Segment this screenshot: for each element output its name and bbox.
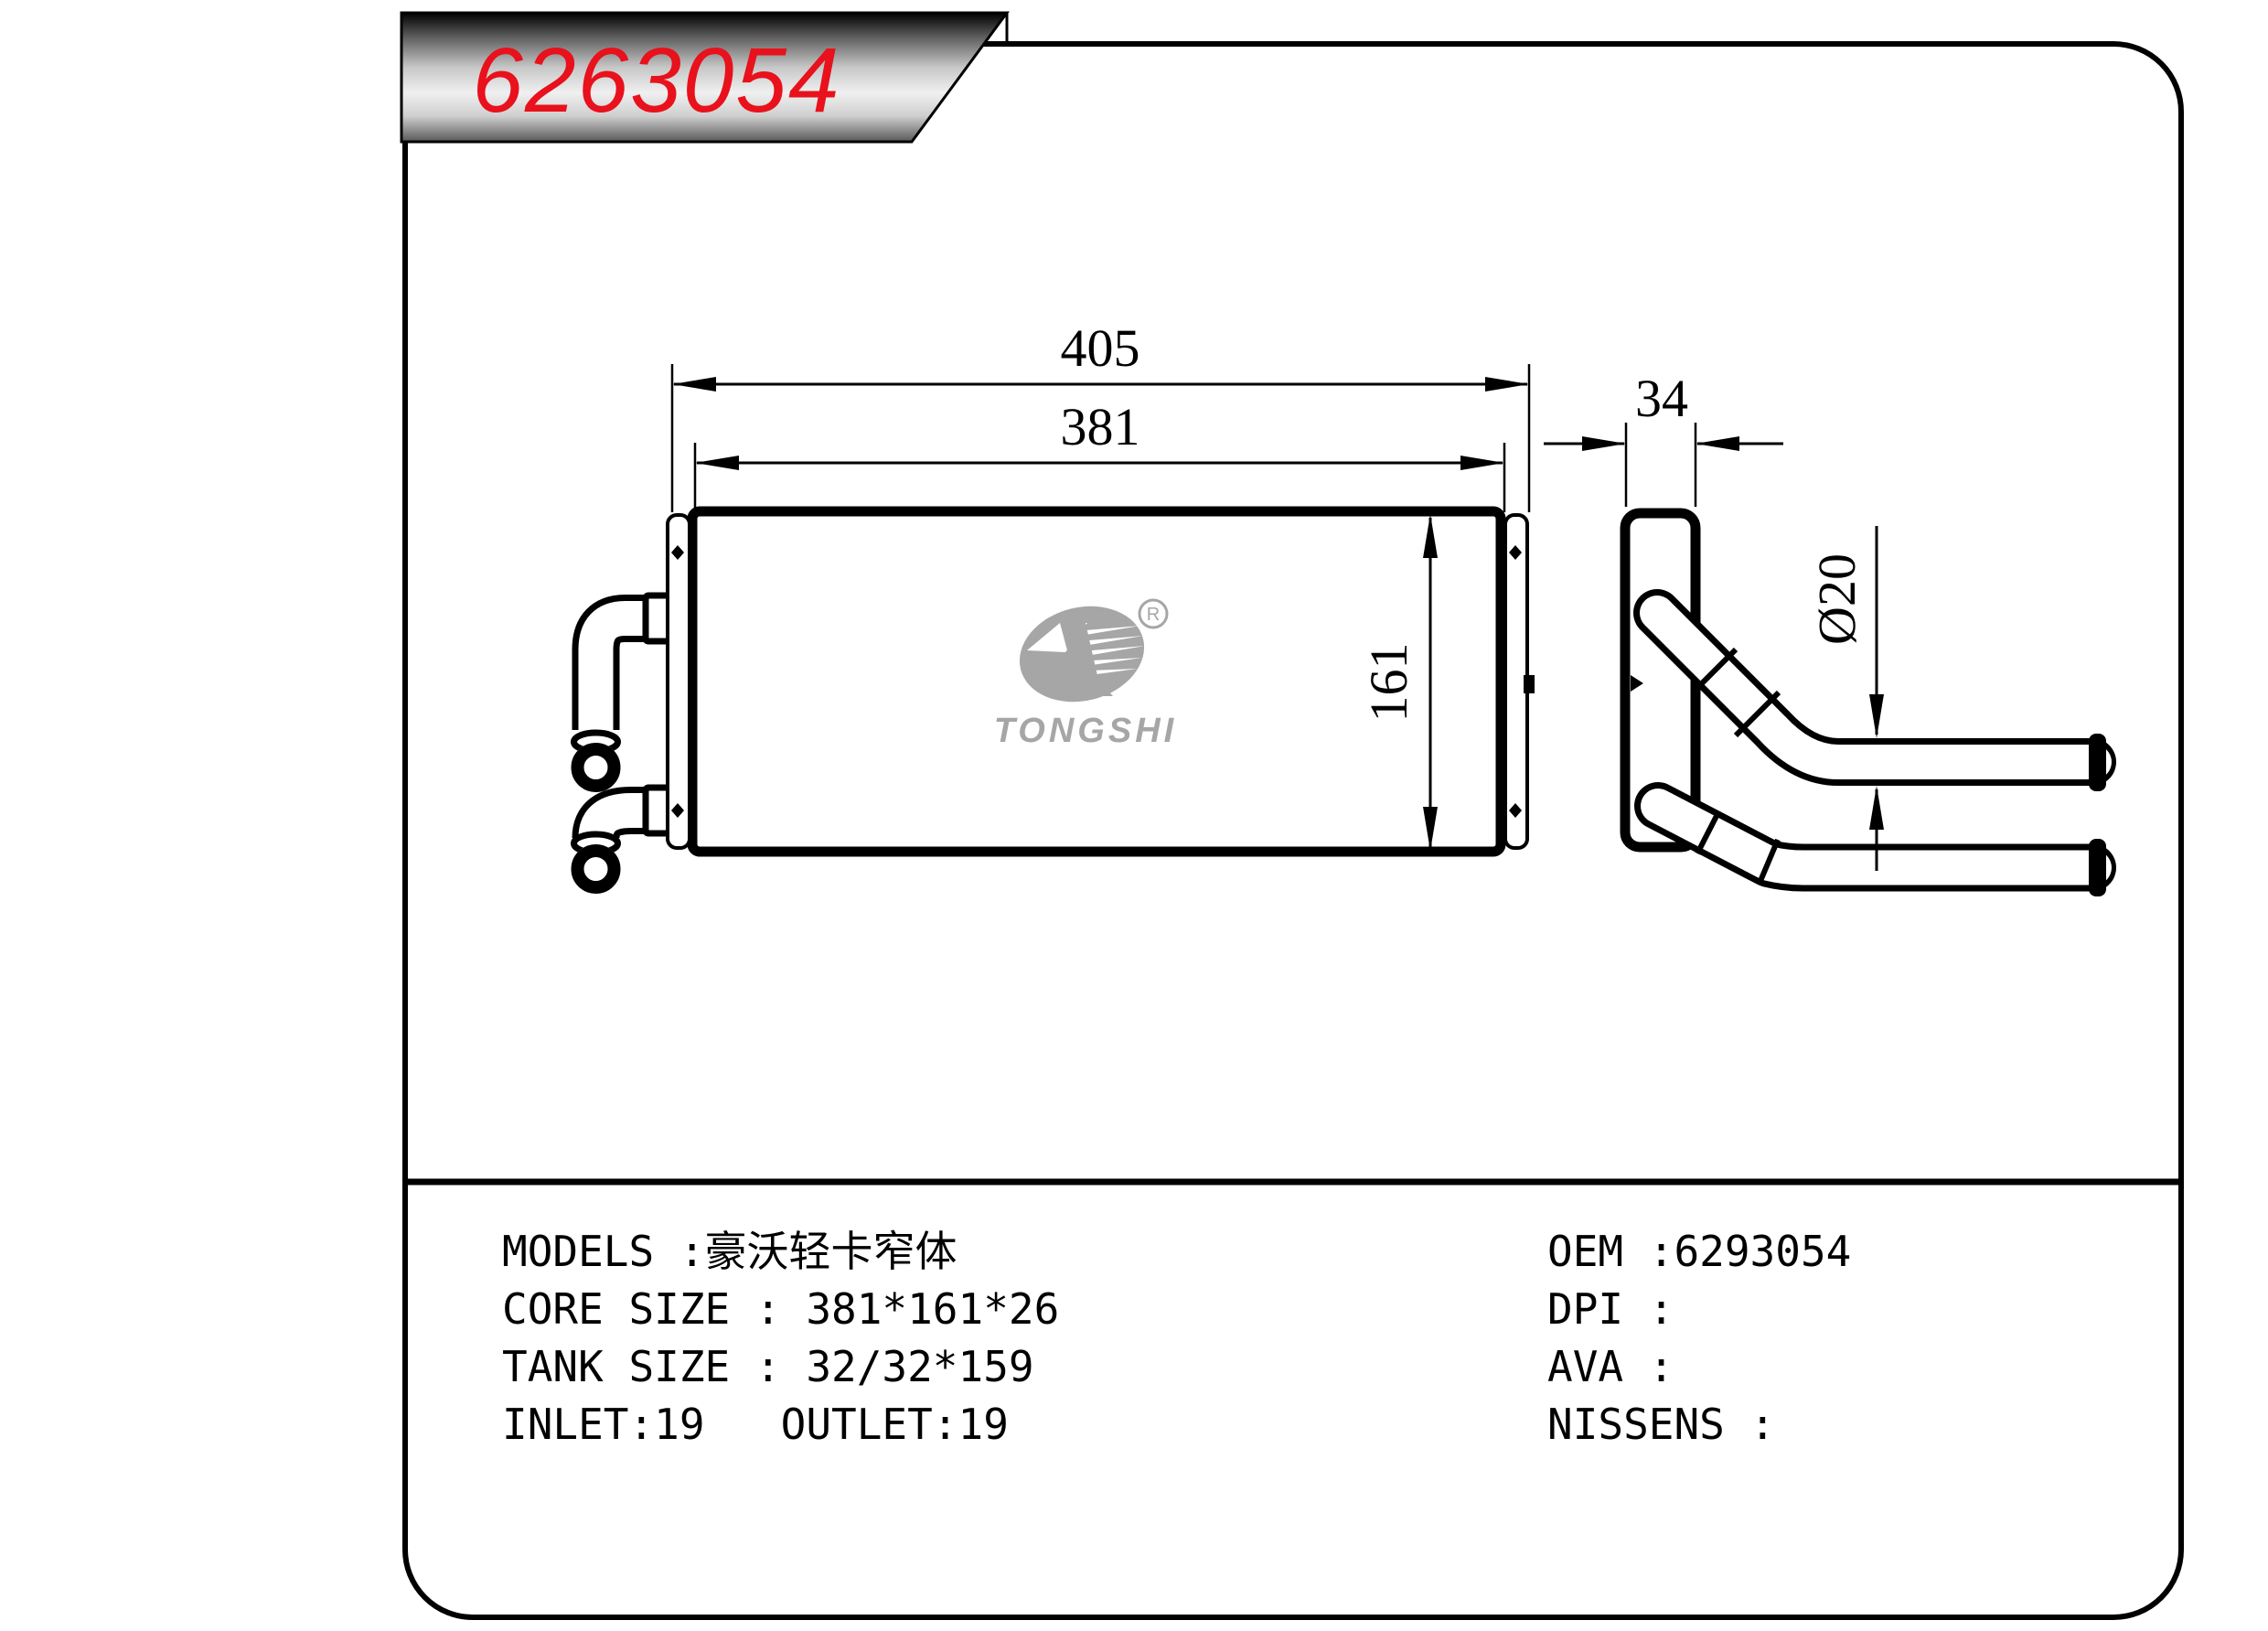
dim-label-381: 381 [1061, 397, 1140, 456]
pipe-end-cap [2089, 734, 2106, 791]
left-end-plate [668, 515, 690, 848]
spec-oem: OEM :6293054 [1547, 1227, 1851, 1276]
spec-models: MODELS :豪沃轻卡窄体 [502, 1227, 957, 1276]
part-number-banner: 6263054 [401, 13, 1007, 142]
spec-tank-size: TANK SIZE : 32/32*159 [502, 1342, 1034, 1391]
spec-ava: AVA : [1547, 1342, 1674, 1391]
plate-tab [1524, 675, 1535, 693]
dim-label-pipe-diameter: Ø20 [1807, 553, 1867, 645]
dim-label-405: 405 [1061, 318, 1140, 378]
pipe-end-cap [2089, 839, 2106, 896]
dim-label-34: 34 [1635, 369, 1688, 428]
pipe-opening [578, 851, 615, 887]
spec-inlet-outlet: INLET:19 OUTLET:19 [502, 1400, 1009, 1449]
spec-nissens: NISSENS : [1547, 1400, 1775, 1449]
pipe-opening [578, 749, 615, 786]
logo-brand-text: TONGSHI [994, 712, 1177, 750]
drawing-page: 405 381 34 161 Ø20 [0, 0, 2268, 1631]
part-number-text: 6263054 [472, 29, 840, 132]
spec-dpi: DPI : [1547, 1284, 1674, 1334]
registered-mark: R [1147, 605, 1160, 625]
dim-label-161: 161 [1359, 643, 1418, 723]
spec-core-size: CORE SIZE : 381*161*26 [502, 1284, 1059, 1334]
